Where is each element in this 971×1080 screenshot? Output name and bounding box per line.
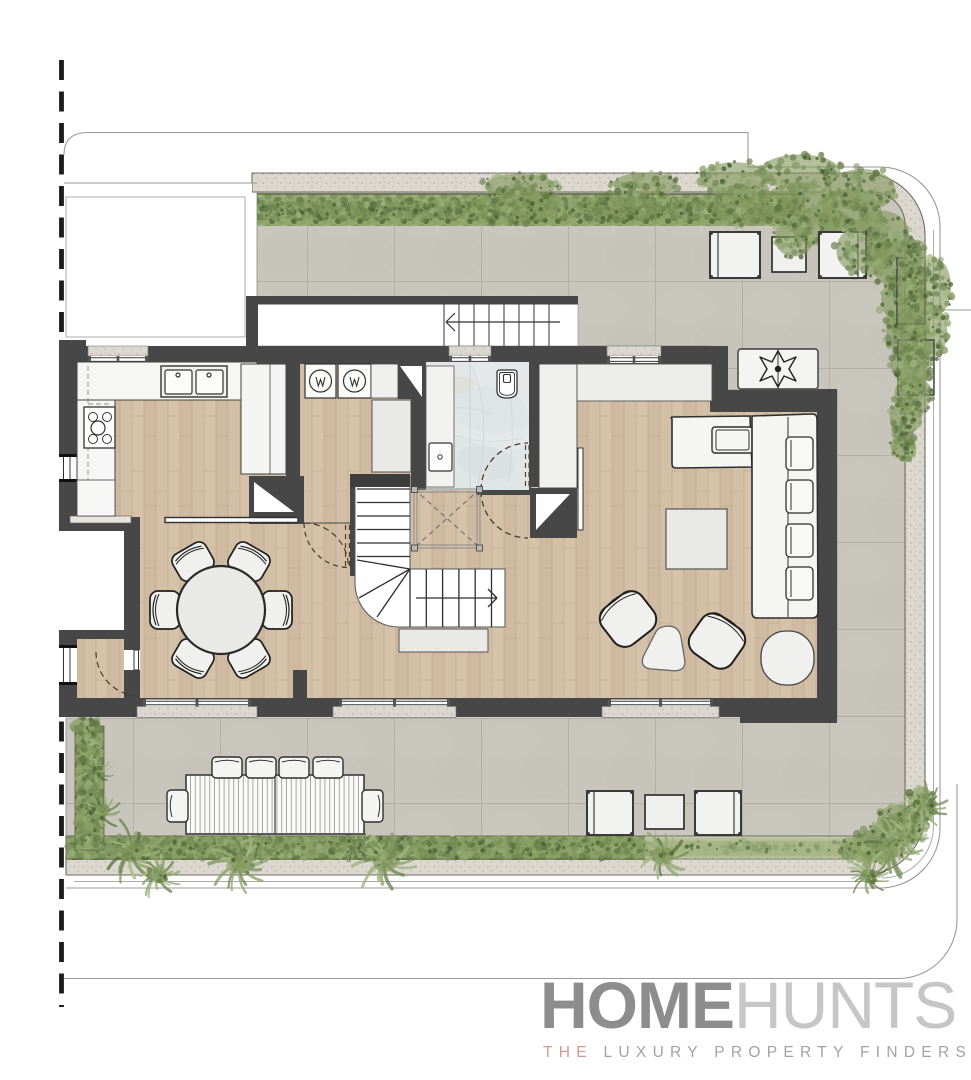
svg-text:HOMEHUNTS: HOMEHUNTS	[540, 968, 956, 1042]
svg-text:THE LUXURY PROPERTY FINDERS: THE LUXURY PROPERTY FINDERS	[543, 1044, 971, 1061]
